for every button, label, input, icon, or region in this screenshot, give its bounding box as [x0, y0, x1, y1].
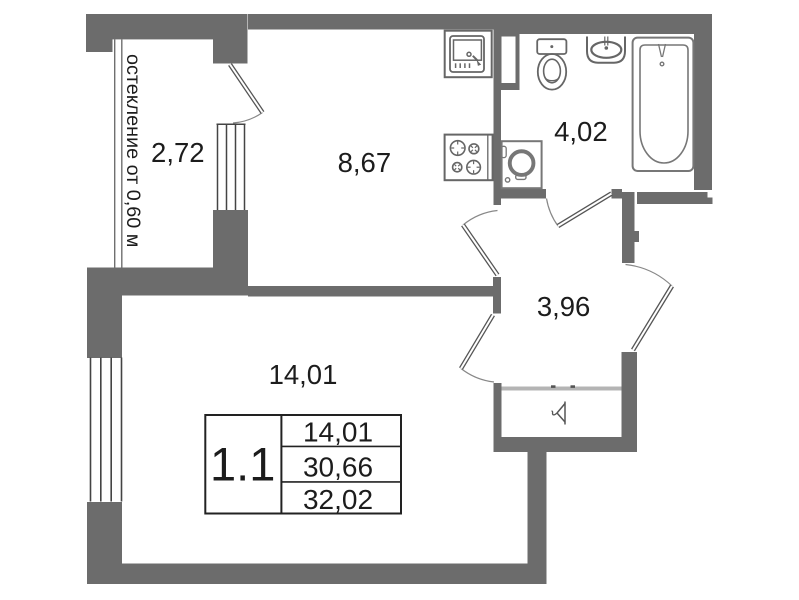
svg-text:1.1: 1.1	[210, 438, 275, 491]
svg-text:4,02: 4,02	[554, 116, 608, 147]
svg-text:32,02: 32,02	[303, 484, 373, 515]
svg-text:14,01: 14,01	[303, 417, 373, 448]
svg-text:2,72: 2,72	[151, 137, 205, 168]
svg-text:30,66: 30,66	[303, 451, 373, 482]
svg-text:8,67: 8,67	[338, 147, 392, 178]
svg-text:3,96: 3,96	[537, 291, 591, 322]
svg-text:остекление от 0,60 м: остекление от 0,60 м	[122, 54, 144, 247]
svg-text:14,01: 14,01	[269, 359, 338, 390]
